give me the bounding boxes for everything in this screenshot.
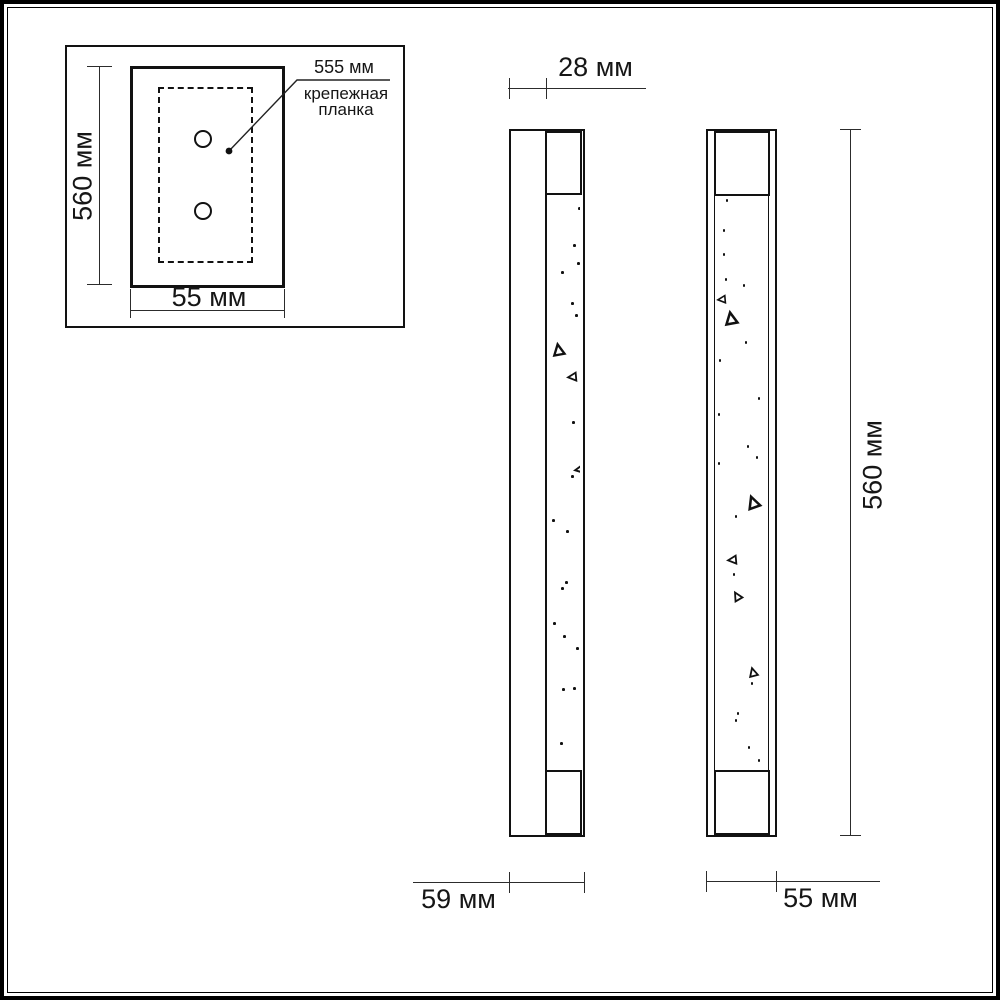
sparkle-triangle	[567, 372, 578, 383]
sparkle-dot	[723, 229, 726, 232]
front-view-top-cap	[714, 131, 770, 196]
front-view-bottom-cap	[714, 770, 770, 835]
sparkle-dot	[745, 341, 748, 344]
sparkle-dot	[725, 278, 728, 281]
sparkle-triangle	[573, 463, 580, 476]
sparkle-triangle	[551, 342, 566, 357]
sparkle-dot	[553, 622, 556, 625]
sparkle-triangle	[722, 310, 738, 326]
technical-drawing-canvas: 555 мм крепежная планка 560 мм 55 мм 28 …	[0, 0, 1000, 1000]
inset-width-dim-ext-right	[284, 289, 285, 318]
sparkle-dot	[723, 253, 726, 256]
sparkle-dot	[719, 359, 722, 362]
depth-59-dim-tick-right	[584, 872, 585, 893]
sparkle-dot	[718, 413, 721, 416]
sparkle-dot	[563, 635, 566, 638]
sparkle-dot	[751, 682, 754, 685]
inset-height-dim-line	[99, 66, 100, 285]
sparkle-triangle	[730, 589, 744, 603]
sparkle-dot	[743, 284, 746, 287]
sparkle-dot	[572, 421, 575, 424]
mounting-hole-bottom	[194, 202, 212, 220]
mounting-plate-dashed-outline	[158, 87, 253, 263]
callout-part-label: крепежная планка	[276, 86, 416, 118]
sparkle-dot	[561, 271, 564, 274]
height-560-dim-tick-bottom	[840, 835, 861, 836]
depth-28-dim-tick-left	[509, 78, 510, 99]
sparkle-dot	[573, 687, 576, 690]
sparkle-dot	[577, 262, 580, 265]
sparkle-dot	[758, 397, 761, 400]
sparkle-dot	[737, 712, 740, 715]
sparkle-dot	[733, 573, 736, 576]
mounting-detail-panel: 555 мм крепежная планка 560 мм 55 мм	[65, 45, 405, 328]
front-view-right-rail	[768, 131, 770, 835]
depth-59-dim-label: 59 мм	[406, 886, 511, 913]
sparkle-dot	[747, 445, 750, 448]
sparkle-dot	[571, 302, 574, 305]
sparkle-triangle	[726, 555, 737, 566]
sparkle-dot	[571, 475, 574, 478]
inset-height-dim-tick-bottom	[87, 284, 112, 285]
sparkle-dot	[573, 244, 576, 247]
sparkle-dot	[566, 530, 569, 533]
height-560-dim-tick-top	[840, 129, 861, 130]
side-view-backplate-divider	[545, 131, 547, 835]
sparkle-dot	[565, 581, 568, 584]
callout-dimension-label: 555 мм	[274, 58, 414, 76]
side-view-body	[509, 129, 585, 837]
sparkle-dot	[562, 688, 565, 691]
side-view-top-cap	[545, 131, 582, 195]
sparkle-dot	[578, 207, 580, 210]
height-560-dim-line	[850, 130, 851, 836]
sparkle-dot	[576, 647, 579, 650]
front-view-body	[706, 129, 777, 837]
sparkle-triangle	[716, 295, 726, 305]
side-view-bottom-cap	[545, 770, 582, 835]
inset-height-dim-label: 560 мм	[70, 131, 97, 221]
front-view-diffuser-glass	[716, 195, 768, 771]
sparkle-dot	[718, 462, 721, 465]
depth-28-dim-line	[508, 88, 646, 89]
sparkle-dot	[561, 587, 564, 590]
sparkle-dot	[735, 515, 738, 518]
width-55-dim-label: 55 мм	[768, 885, 873, 912]
side-view-diffuser-glass	[548, 195, 580, 772]
sparkle-triangle	[746, 666, 758, 678]
sparkle-dot	[735, 719, 738, 722]
sparkle-triangle	[744, 493, 762, 511]
inset-width-dim-label: 55 мм	[139, 284, 279, 311]
depth-28-dim-tick-right	[546, 78, 547, 99]
sparkle-dot	[756, 456, 759, 459]
sparkle-dot	[758, 759, 761, 762]
sparkle-dot	[726, 199, 729, 202]
sparkle-dot	[552, 519, 555, 522]
sparkle-dot	[560, 742, 563, 745]
callout-part-label-line2: планка	[276, 102, 416, 118]
mounting-hole-top	[194, 130, 212, 148]
sparkle-dot	[575, 314, 578, 317]
inset-height-dim-tick-top	[87, 66, 112, 67]
depth-28-dim-label: 28 мм	[543, 54, 648, 81]
height-560-dim-label: 560 мм	[860, 420, 887, 510]
width-55-dim-tick-left	[706, 871, 707, 892]
inset-width-dim-ext-left	[130, 289, 131, 318]
sparkle-dot	[748, 746, 751, 749]
